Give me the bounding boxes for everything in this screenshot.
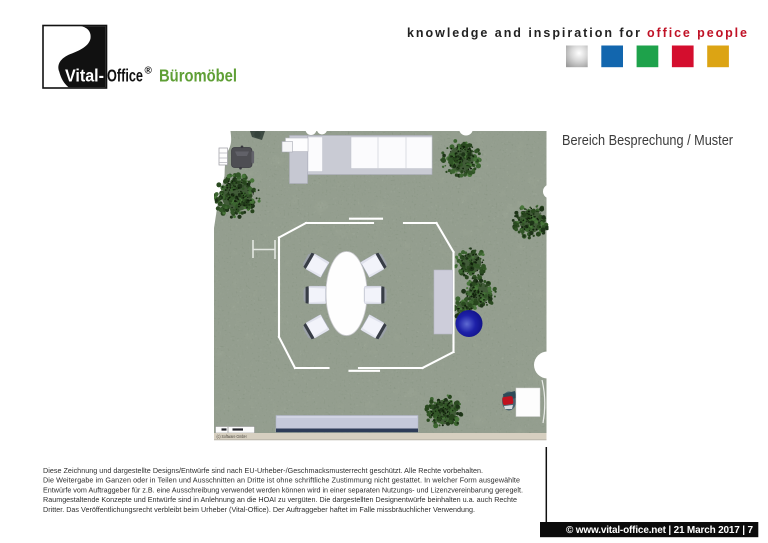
svg-text:Office: Office: [107, 66, 143, 86]
svg-text:Büromöbel: Büromöbel: [159, 66, 237, 86]
svg-text:office people: office people: [647, 26, 747, 40]
svg-text:knowledge and inspiration for: knowledge and inspiration for: [407, 26, 640, 40]
svg-text:Entwürfe vom Auftraggeber für: Entwürfe vom Auftraggeber für z.B. eine …: [43, 485, 523, 494]
svg-text:Vital-: Vital-: [65, 66, 104, 86]
svg-text:Diese Zeichnung und dargestell: Diese Zeichnung und dargestellte Designs…: [43, 466, 483, 475]
svg-text:Bereich Besprechung / Muster: Bereich Besprechung / Muster: [562, 133, 733, 149]
svg-text:© www.vital-office.net | 2: © www.vital-office.net | 21 March 2017 |…: [566, 525, 753, 536]
svg-text:Die Weitergabe im Ganzen oder: Die Weitergabe im Ganzen oder in Teilen …: [43, 476, 520, 485]
svg-text:(c) Software GmbH: (c) Software GmbH: [217, 434, 247, 439]
svg-text:®: ®: [145, 66, 153, 77]
svg-text:Dritter. Das Veröffentlichungs: Dritter. Das Veröffentlichungsrecht verb…: [43, 505, 475, 514]
svg-text:Raumgestaltende Konzepte und E: Raumgestaltende Konzepte und Entwürfe si…: [43, 495, 517, 504]
